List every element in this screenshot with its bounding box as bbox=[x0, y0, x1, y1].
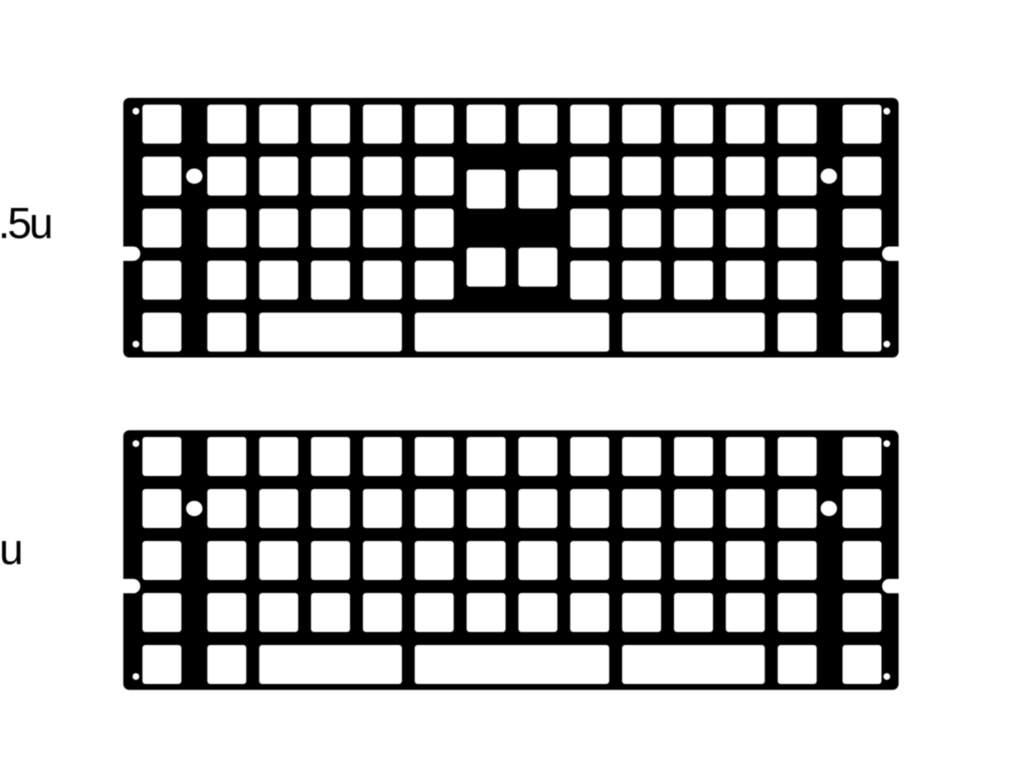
svg-text:u: u bbox=[0, 526, 23, 574]
svg-text:.5u: .5u bbox=[0, 200, 51, 248]
